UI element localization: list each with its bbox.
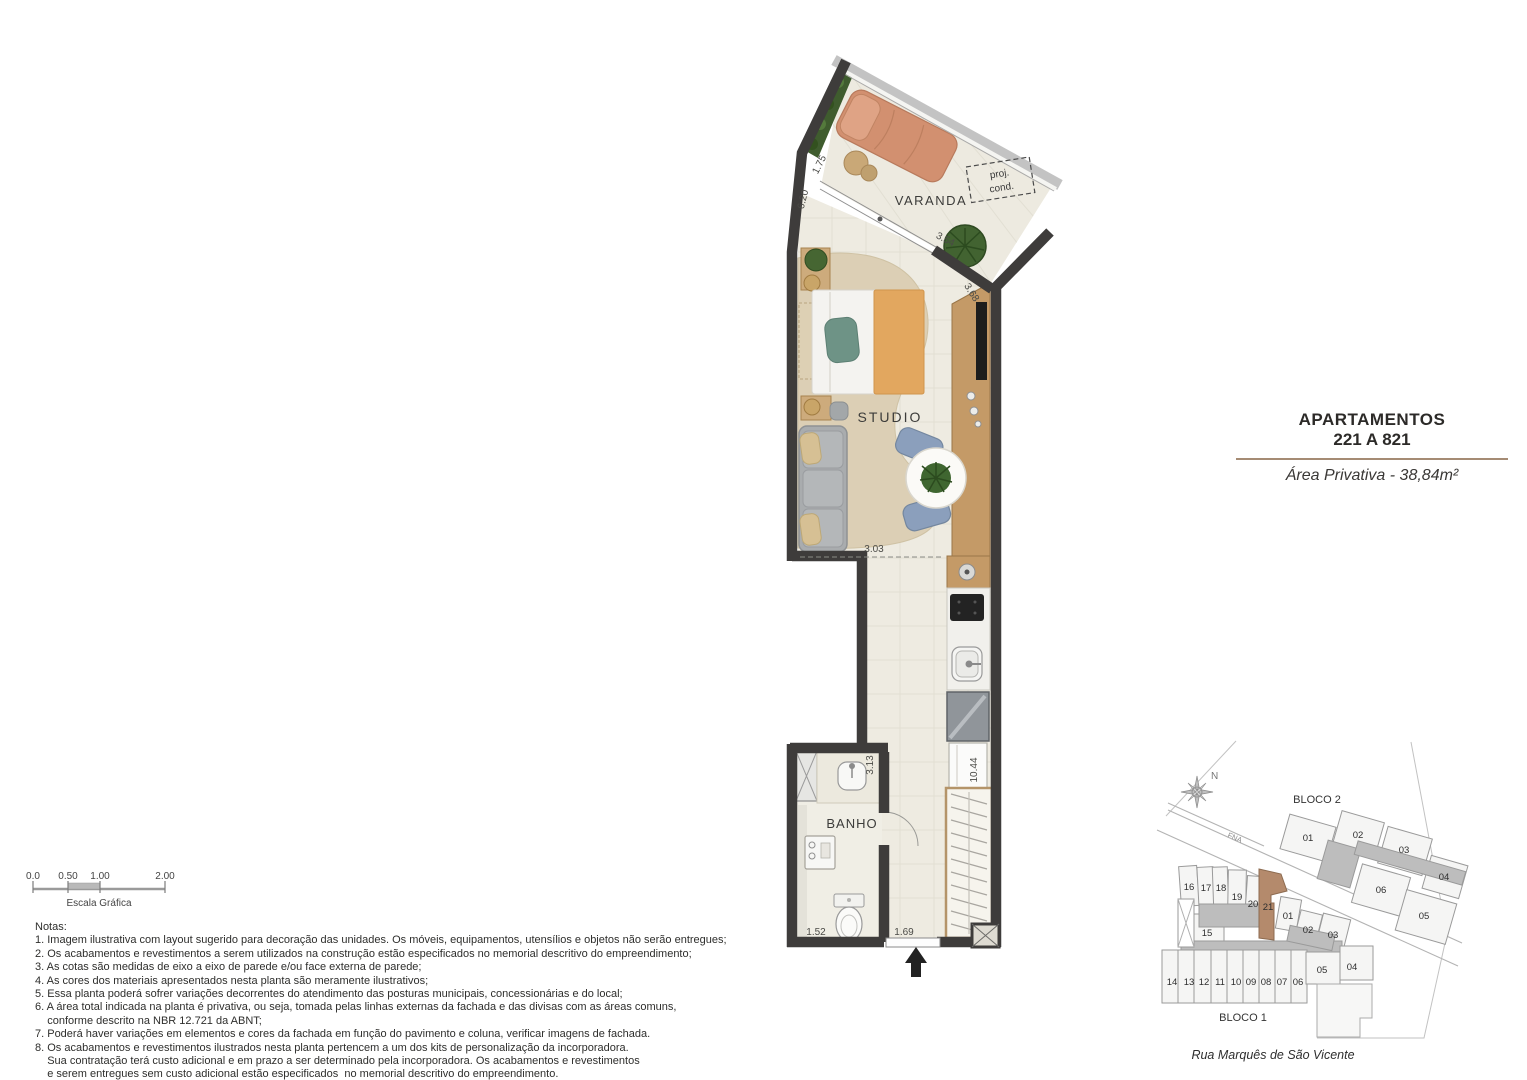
title-line2: 221 A 821 — [1236, 430, 1508, 450]
washer — [949, 743, 987, 788]
shaft-box — [972, 924, 999, 947]
notes-line: conforme descrito na NBR 12.721 da ABNT; — [35, 1015, 727, 1028]
side-table — [861, 165, 877, 181]
headboard — [799, 303, 813, 379]
notes-line: 1. Imagem ilustrativa com layout sugerid… — [35, 934, 727, 947]
north-label: N — [1211, 771, 1218, 782]
plant-icon — [805, 249, 827, 271]
toilet — [836, 907, 862, 941]
entrance-arrow-icon — [905, 947, 927, 977]
bloco2-label: BLOCO 2 — [1293, 794, 1341, 806]
lamp-icon — [804, 399, 820, 415]
entrance-door — [886, 938, 940, 947]
dim-studio-width: 3.03 — [864, 544, 884, 555]
unit-number: 12 — [1199, 977, 1210, 988]
unit-number: 04 — [1439, 872, 1450, 883]
unit-number: 13 — [1184, 977, 1195, 988]
pillow — [824, 316, 860, 363]
lamp-icon — [804, 275, 820, 291]
title-line1: APARTAMENTOS — [1236, 410, 1508, 430]
scale-bar: 0.0 0.50 1.00 2.00 Escala Gráfica — [26, 871, 175, 909]
unit-number: 06 — [1376, 885, 1387, 896]
private-area-label: Área Privativa - 38,84m² — [1236, 467, 1508, 485]
kitchen-counter — [947, 556, 990, 788]
notes-line: e serem entregues sem custo adicional es… — [35, 1068, 727, 1080]
notes-line: 6. A área total indicada na planta é pri… — [35, 1001, 727, 1014]
room-label-varanda: VARANDA — [895, 193, 967, 208]
unit-number: 03 — [1328, 930, 1339, 941]
notes-line: Notas: — [35, 921, 727, 934]
unit-number: 05 — [1419, 911, 1430, 922]
room-label-studio: STUDIO — [858, 409, 923, 425]
notes-line: 7. Poderá haver variações em elementos e… — [35, 1028, 727, 1041]
floor-plan: proj. cond. 1.75 6.20 3.54 3.68 3.03 3.1… — [787, 60, 1060, 977]
entrance — [886, 938, 940, 977]
unit-number: 19 — [1232, 892, 1243, 903]
notes-line: Sua contratação terá custo adicional e e… — [35, 1055, 727, 1068]
throw-pillow — [799, 432, 822, 465]
unit-number: 01 — [1303, 833, 1314, 844]
unit-number: 14 — [1167, 977, 1178, 988]
cabinet — [805, 836, 835, 869]
unit-number: 16 — [1184, 882, 1195, 893]
notes-line: 2. Os acabamentos e revestimentos a sere… — [35, 948, 727, 961]
notes-line: 8. Os acabamentos e revestimentos ilustr… — [35, 1042, 727, 1055]
unit-number: 21 — [1263, 902, 1274, 913]
title-divider — [1236, 458, 1508, 460]
unit-number: 17 — [1201, 883, 1212, 894]
floorplan-page: proj. cond. 1.75 6.20 3.54 3.68 3.03 3.1… — [0, 0, 1527, 1080]
street-label: Rua Marquês de São Vicente — [1191, 1048, 1354, 1062]
unit-number: 11 — [1215, 977, 1225, 988]
unit-number: 10 — [1231, 977, 1242, 988]
floor-plan-canvas: proj. cond. 1.75 6.20 3.54 3.68 3.03 3.1… — [0, 0, 1527, 1080]
wardrobe — [952, 283, 990, 558]
notes-line: 5. Essa planta poderá sofrer variações d… — [35, 988, 727, 1001]
blanket — [874, 290, 924, 394]
scale-tick-0: 0.0 — [26, 871, 40, 882]
dim-bath-width: 1.52 — [806, 927, 826, 938]
unit-number: 05 — [1317, 965, 1328, 976]
compass-icon — [1181, 776, 1213, 808]
unit-number: 03 — [1399, 845, 1410, 856]
scale-tick-3: 2.00 — [155, 871, 175, 882]
scale-caption: Escala Gráfica — [66, 898, 131, 909]
bloco1-label: BLOCO 1 — [1219, 1012, 1267, 1024]
unit-number: 02 — [1353, 830, 1364, 841]
scale-tick-2: 1.00 — [90, 871, 110, 882]
unit-number: 15 — [1202, 928, 1213, 939]
scale-tick-1: 0.50 — [58, 871, 78, 882]
unit-number: 04 — [1347, 962, 1358, 973]
unit-number: 08 — [1261, 977, 1272, 988]
dim-bath-depth: 3.13 — [865, 755, 876, 775]
site-plan: FNA N BLOCO 2 01 02 03 04 06 05 — [1157, 741, 1468, 1062]
unit-number: 20 — [1248, 899, 1259, 910]
notes-line: 4. As cores dos materiais apresentados n… — [35, 975, 727, 988]
title-block: APARTAMENTOS 221 A 821 Área Privativa - … — [1236, 410, 1508, 485]
site-boundary — [1166, 741, 1236, 816]
cooktop — [950, 594, 984, 621]
notes-line: 3. As cotas são medidas de eixo a eixo d… — [35, 961, 727, 974]
notes-block: Notas: 1. Imagem ilustrativa com layout … — [35, 921, 727, 1080]
unit-number: 18 — [1216, 883, 1227, 894]
unit-number: 07 — [1277, 977, 1288, 988]
unit-number: 01 — [1283, 911, 1294, 922]
sofa — [799, 426, 847, 552]
stool — [830, 402, 848, 420]
dim-right-side: 10.44 — [969, 757, 980, 782]
unit-number: 09 — [1246, 977, 1257, 988]
closet — [946, 788, 992, 938]
unit-number: 06 — [1293, 977, 1304, 988]
throw-pillow — [799, 513, 822, 546]
unit-number: 02 — [1303, 925, 1314, 936]
room-label-banho: BANHO — [826, 816, 877, 831]
dim-entry-width: 1.69 — [894, 927, 914, 938]
